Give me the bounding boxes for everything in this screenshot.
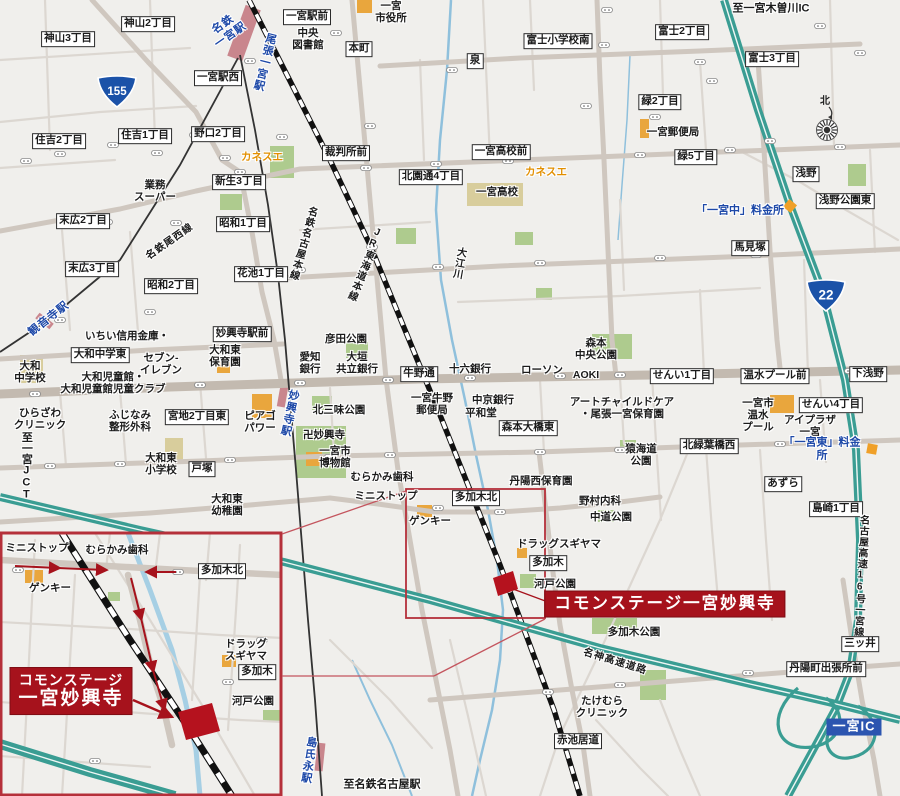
route-shield: 155 (98, 76, 136, 107)
poi-label: 一宮市 温水 プール (742, 397, 774, 433)
poi-label: ドラッグ スギヤマ (225, 638, 267, 662)
signal-marker (55, 151, 66, 156)
signal-marker (30, 391, 41, 396)
signal-marker (635, 152, 646, 157)
poi-label: 大垣 共立銀行 (336, 351, 378, 375)
park-area (848, 164, 866, 186)
signal-marker (431, 161, 442, 166)
signal-marker (535, 449, 546, 454)
poi-label: 河戸公園 (232, 695, 274, 707)
district-label: 末広3丁目 (65, 261, 119, 277)
district-label: 三ッ井 (841, 636, 879, 652)
poi-label: 大和東 小学校 (145, 452, 177, 476)
inset-property-banner: コモンステージ一宮妙興寺 (9, 667, 132, 715)
district-label: 森本大橋東 (499, 420, 558, 436)
poi-label: 彦田公園 (325, 333, 367, 345)
poi-label: 平和堂 (465, 407, 497, 419)
store-label: カネスエ (241, 151, 283, 163)
signal-marker (45, 463, 56, 468)
poi-label: 大和児童館・ 大和児童館児童クラブ (61, 371, 166, 395)
district-label: 馬見塚 (731, 240, 769, 256)
signal-marker (615, 372, 626, 377)
store-label: カネスエ (525, 166, 567, 178)
road (0, 48, 190, 60)
poi-label: ミニストップ (355, 490, 418, 502)
road (700, 290, 704, 374)
direction-label: 至一宮JCT (20, 432, 33, 501)
district-label: 富士3丁目 (745, 51, 799, 67)
district-label: 温水プール前 (741, 368, 810, 384)
signal-marker (815, 23, 826, 28)
signal-marker (361, 165, 372, 170)
poi-label: ピアゴ パワー (244, 410, 276, 434)
signal-marker (277, 134, 288, 139)
district-label: 富士2丁目 (655, 24, 709, 40)
district-label: 下浅野 (849, 366, 887, 382)
district-label: 浅野 (793, 166, 820, 182)
district-label: 一宮高校前 (472, 144, 531, 160)
building-area (357, 0, 372, 13)
signal-marker (115, 461, 126, 466)
signal-marker (835, 144, 846, 149)
road (660, 0, 663, 95)
road (130, 232, 138, 332)
district-label: 多加木 (529, 555, 567, 571)
district-label: 緑5丁目 (674, 149, 717, 165)
district-label: 一宮駅西 (194, 70, 242, 86)
direction-label: 至名鉄名古屋駅 (344, 779, 421, 792)
tollgate-label: 「一宮東」料金所 (783, 436, 861, 461)
poi-label: 森本 中央公園 (575, 337, 617, 361)
poi-label: 卍妙興寺 (303, 429, 345, 441)
road (0, 106, 196, 122)
signal-marker (21, 158, 32, 163)
poi-label: アイプラザ 一宮 (784, 414, 836, 438)
river (352, 660, 412, 796)
district-label: 妙興寺駅前 (213, 326, 272, 342)
poi-label: 多加木公園 (608, 626, 661, 638)
direction-label: 至一宮木曽川IC (733, 3, 810, 16)
district-label: 赤池居道 (554, 733, 602, 749)
signal-marker (171, 220, 182, 225)
district-label: 昭和1丁目 (216, 216, 270, 232)
map-viewport: 北15522 神山2丁目神山3丁目一宮駅前一宮 市役所中央 図書館本町泉富士小学… (0, 0, 900, 796)
poi-label: 丹陽西保育園 (510, 475, 573, 487)
poi-label: ゲンキー (29, 582, 71, 594)
signal-marker (447, 67, 458, 72)
poi-label: 中道公園 (590, 511, 632, 523)
road (596, 720, 668, 796)
district-label: 神山2丁目 (121, 16, 175, 32)
signal-marker (385, 452, 396, 457)
signal-marker (245, 58, 256, 63)
signal-marker (331, 30, 342, 35)
signal-marker (495, 509, 506, 514)
district-label: 丹陽町出張所前 (786, 661, 866, 677)
district-label: 島崎1丁目 (809, 501, 863, 517)
compass-icon: 北 (817, 94, 838, 141)
signal-marker (433, 264, 444, 269)
district-label: 富士小学校南 (524, 33, 593, 49)
poi-label: ひらざわ クリニック (14, 407, 67, 431)
signal-marker (743, 670, 754, 675)
district-label: 北緑葉橋西 (680, 438, 739, 454)
poi-label: 十六銀行 (449, 363, 491, 375)
poi-label: ローソン (521, 364, 563, 376)
road (804, 260, 808, 374)
signal-marker (725, 147, 736, 152)
signal-marker (90, 758, 101, 763)
poi-label: ゲンキー (409, 515, 451, 527)
road (758, 60, 781, 377)
signal-marker (365, 123, 376, 128)
road (45, 0, 50, 150)
route-shield-number: 155 (107, 86, 127, 98)
poi-label: ミニストップ (6, 542, 69, 554)
road (330, 640, 432, 748)
district-label: 北園通4丁目 (399, 169, 463, 185)
route-shield: 22 (807, 280, 845, 311)
poi-label: 北三味公園 (313, 404, 366, 416)
poi-label: たけむら クリニック (576, 695, 629, 719)
poi-label: 一宮高校 (476, 186, 518, 198)
route-shield-number: 22 (818, 288, 833, 303)
district-label: 住吉2丁目 (32, 133, 86, 149)
signal-marker (13, 567, 24, 572)
poi-label: むらかみ歯科 (86, 544, 149, 556)
signal-marker (599, 42, 610, 47)
road (0, 160, 115, 168)
poi-label: 大和 中学校 (14, 360, 46, 384)
road (660, 700, 700, 796)
district-label: 住吉1丁目 (118, 128, 172, 144)
district-label: 戸塚 (189, 461, 216, 477)
signal-marker (220, 155, 231, 160)
signal-marker (695, 59, 706, 64)
signal-marker (707, 78, 718, 83)
district-label: 本町 (346, 41, 373, 57)
signal-marker (855, 50, 866, 55)
park-area (515, 232, 533, 245)
compass-north-label: 北 (820, 94, 830, 107)
district-label: 泉 (467, 53, 484, 69)
signal-marker (615, 447, 626, 452)
poi-label: 中央 図書館 (292, 27, 324, 51)
property-site-polygon (493, 571, 518, 596)
district-label: あずら (764, 476, 802, 492)
signal-marker (383, 377, 394, 382)
park-area (220, 194, 242, 210)
poi-label: 猿海道 公園 (625, 443, 657, 467)
district-label: 浅野公園東 (816, 193, 875, 209)
road (420, 60, 424, 160)
interchange-badge: 一宮IC (826, 719, 881, 736)
signal-marker (152, 150, 163, 155)
tollgate-label: 「一宮中」料金所 (696, 205, 784, 218)
signal-marker (581, 103, 592, 108)
poi-label: ふじなみ 整形外科 (109, 409, 151, 433)
signal-marker (108, 142, 119, 147)
signal-marker (655, 255, 666, 260)
district-label: 裁判所前 (322, 145, 370, 161)
poi-label: 大和東 保育園 (209, 344, 241, 368)
poi-label: ドラッグスギヤマ (517, 538, 601, 550)
signal-marker (223, 679, 234, 684)
district-label: 昭和2丁目 (144, 278, 198, 294)
poi-label: 一宮郵便局 (647, 126, 700, 138)
road (92, 0, 281, 380)
signal-marker (543, 689, 554, 694)
poi-label: いちい信用金庫・ (85, 330, 169, 342)
signal-marker (225, 457, 236, 462)
signal-marker (535, 260, 546, 265)
poi-label: 大和東 幼稚園 (211, 493, 243, 517)
poi-label: 野村内科 (579, 495, 621, 507)
district-label: せんい1丁目 (650, 368, 714, 384)
signal-marker (465, 375, 476, 380)
signal-marker (433, 505, 444, 510)
poi-label: 河戸公園 (534, 578, 576, 590)
poi-label: アートチャイルドケア ・尾張一宮保育園 (570, 396, 674, 420)
poi-label: 愛知 銀行 (300, 351, 321, 375)
poi-label: 一宮市 博物館 (319, 445, 351, 469)
district-label: 大和中学東 (71, 347, 130, 363)
district-label: 新生3丁目 (212, 174, 266, 190)
property-banner: コモンステージ一宮妙興寺 (544, 591, 785, 618)
poi-label: むらかみ歯科 (351, 471, 414, 483)
district-label: 野口2丁目 (191, 126, 245, 142)
district-label: 一宮駅前 (283, 9, 331, 25)
road (706, 448, 718, 600)
district-label: 緑2丁目 (638, 94, 681, 110)
road (620, 200, 624, 290)
poi-label: 業務 スーパー (134, 179, 176, 203)
poi-label: 中京銀行 (472, 394, 514, 406)
poi-label: AOKI (573, 369, 599, 381)
district-label: せんい4丁目 (799, 397, 863, 413)
signal-marker (295, 380, 306, 385)
district-label: 神山3丁目 (41, 31, 95, 47)
signal-marker (765, 138, 776, 143)
district-label: 宮地2丁目東 (165, 409, 229, 425)
district-label: 末広2丁目 (56, 213, 110, 229)
signal-marker (195, 382, 206, 387)
poi-label: 一宮牛野 郵便局 (411, 392, 453, 416)
district-label: 多加木 (238, 664, 276, 680)
toll-gate-marker (866, 443, 878, 455)
road (483, 0, 490, 160)
signal-marker (615, 682, 626, 687)
road (540, 380, 544, 452)
signal-marker (650, 114, 661, 119)
district-label: 花池1丁目 (234, 266, 288, 282)
district-label: 多加木北 (452, 490, 500, 506)
road (700, 62, 706, 150)
signal-marker (602, 7, 613, 12)
district-label: 牛野通 (400, 366, 438, 382)
poi-label: 一宮 市役所 (375, 0, 407, 24)
park-area (396, 228, 416, 244)
signal-marker (145, 309, 156, 314)
park-area (108, 592, 120, 601)
district-label: 多加木北 (198, 563, 246, 579)
